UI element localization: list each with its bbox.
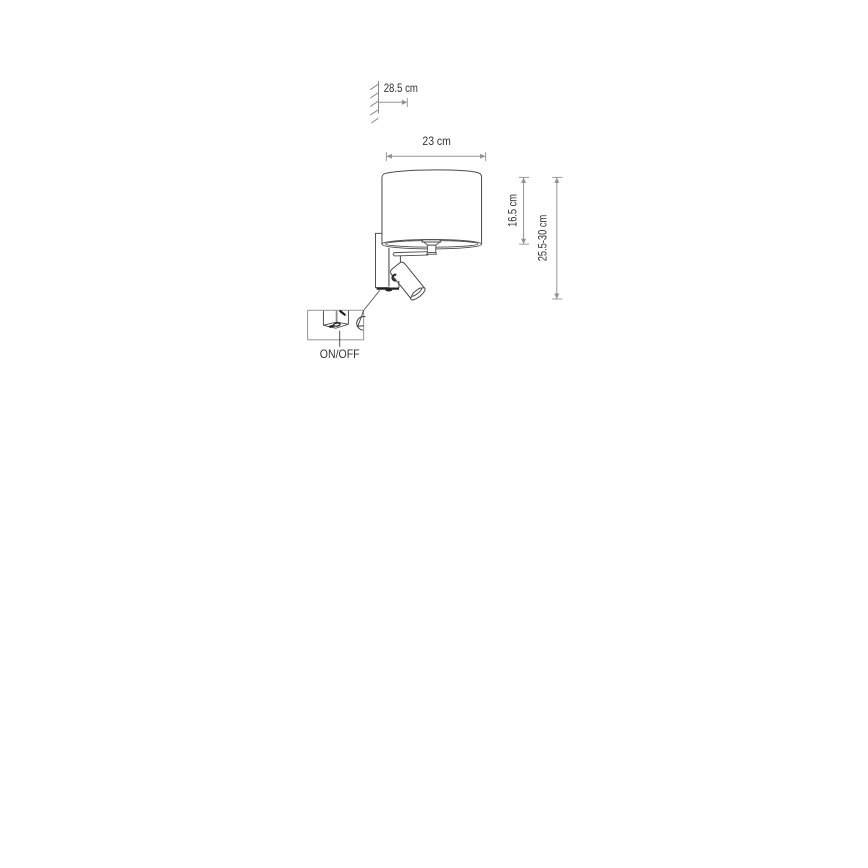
svg-text:25.5-30 cm: 25.5-30 cm [536, 215, 550, 262]
svg-text:28.5 cm: 28.5 cm [384, 82, 418, 95]
svg-text:16.5 cm: 16.5 cm [506, 194, 520, 227]
svg-text:ON/OFF: ON/OFF [320, 347, 360, 361]
svg-text:23 cm: 23 cm [422, 135, 450, 148]
